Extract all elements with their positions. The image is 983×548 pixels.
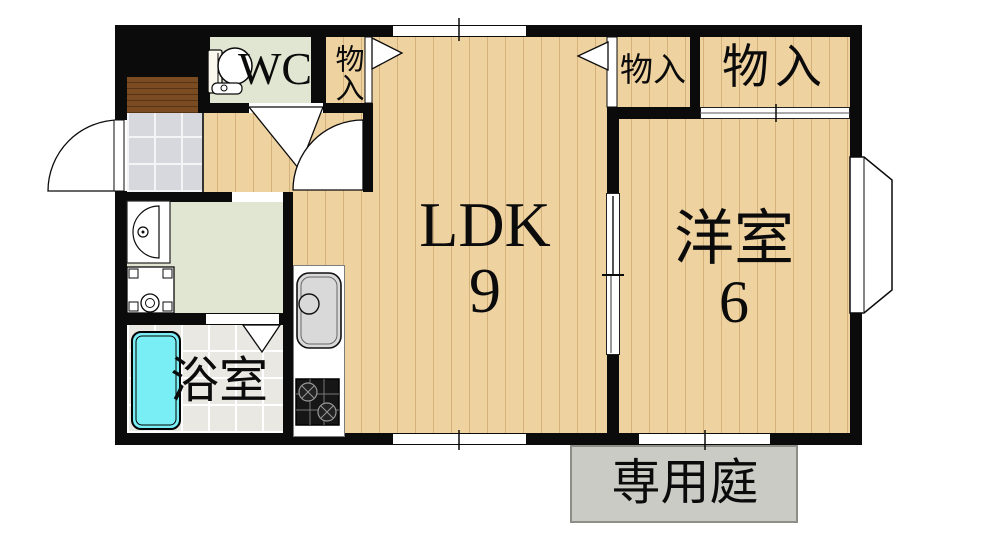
- western-text: 洋室: [620, 208, 848, 271]
- kitchen-sink-fixture: [297, 273, 341, 348]
- room-label-closet-small: 物入: [612, 52, 694, 90]
- washer-pan-corner: [129, 269, 138, 278]
- room-label-ldk: LDK 9: [385, 192, 585, 324]
- entrance-door-swing: [48, 120, 119, 191]
- room-label-wc: WC: [220, 44, 330, 94]
- ldk-text: LDK: [385, 192, 585, 258]
- washer-pan-corner: [163, 302, 172, 311]
- washbasin-drain-dot: [142, 231, 145, 234]
- washer-pan-corner: [129, 302, 138, 311]
- room-label-closet-large: 物入: [700, 42, 850, 94]
- room-label-western: 洋室 6: [620, 208, 848, 334]
- washer-drain: [141, 294, 159, 312]
- ldk-size-text: 9: [385, 258, 585, 324]
- washbasin-fixture: [127, 201, 170, 263]
- closet-small-door-swing: [578, 42, 608, 70]
- room-label-closet-hall: 物入: [330, 40, 364, 106]
- bay-window: [850, 157, 892, 313]
- closet-hall-door-leaf: [365, 37, 372, 103]
- washing-machine-pan-fixture: [127, 267, 174, 313]
- room-label-bathroom: 浴室: [139, 354, 299, 408]
- room-label-garden: 専用庭: [575, 455, 795, 511]
- entrance-door-leaf: [114, 120, 124, 191]
- closet-hall-door-swing: [372, 38, 402, 69]
- floor-plan: WC 物入 物入 物入 LDK 9 洋室 6 浴室 専用庭: [0, 0, 983, 548]
- gas-stove-fixture: [296, 379, 339, 425]
- bathroom-door-swing: [243, 325, 280, 352]
- sink-faucet: [299, 294, 319, 314]
- western-size-text: 6: [620, 271, 848, 334]
- washer-pan-corner: [163, 269, 172, 278]
